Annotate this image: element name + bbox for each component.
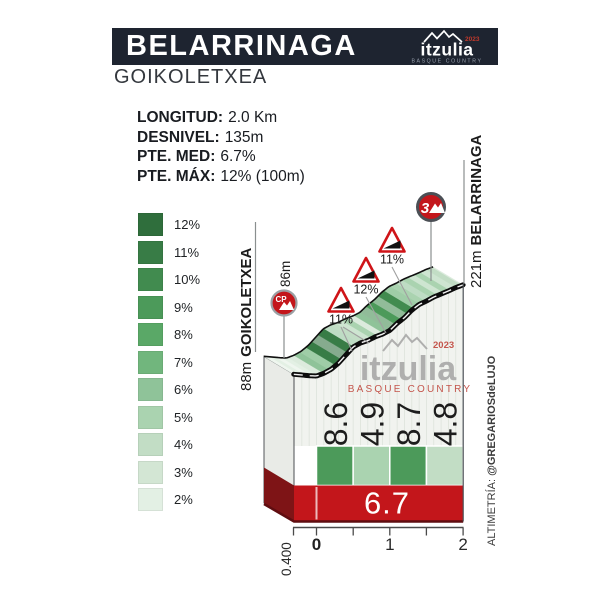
- credit-prefix: ALTIMETRÍA:: [485, 476, 498, 546]
- segment-blocks: [295, 446, 464, 486]
- watermark-tagline: BASQUE COUNTRY: [348, 384, 473, 395]
- gradient-triangle: 11%: [380, 228, 405, 267]
- credit-text: ALTIMETRÍA: @GREGARIOSdeLUJO: [485, 355, 498, 546]
- segment-block: [317, 446, 354, 486]
- summit-name: BELARRINAGA: [468, 134, 485, 245]
- summit-label: 221mBELARRINAGA: [468, 134, 485, 288]
- category-badge: 3: [418, 194, 446, 221]
- start-elevation: 88m: [238, 362, 255, 391]
- axis-offset-label: 0.400: [279, 542, 294, 576]
- segment-gradient-value: 8.7: [391, 402, 427, 446]
- approach-block: [295, 446, 317, 486]
- gradient-triangle: 11%: [329, 288, 354, 327]
- checkpoint-elevation: 86m: [278, 261, 293, 287]
- start-label: 88mGOIKOLETXEA: [238, 247, 255, 391]
- average-gradient-value: 6.7: [364, 486, 410, 521]
- segment-block: [353, 446, 390, 486]
- axis-tick-label: 0: [312, 535, 321, 554]
- max-gradient-label: 12%: [353, 283, 378, 297]
- checkpoint-badge: CP: [272, 291, 297, 316]
- checkpoint-badge-text: CP: [275, 295, 287, 304]
- segment-block: [426, 446, 463, 486]
- x-axis: 0 1 2 0.400: [279, 528, 468, 577]
- climb-profile-chart: 6.7 2023 itzulia BASQUE COUNTRY 8.6 4.9 …: [0, 0, 600, 600]
- segment-gradient-value: 4.9: [355, 402, 391, 446]
- segment-gradient-value: 4.8: [428, 402, 464, 446]
- segment-gradients: 8.6 4.9 8.7 4.8: [318, 402, 464, 446]
- max-gradient-label: 11%: [329, 313, 353, 327]
- start-name: GOIKOLETXEA: [238, 247, 255, 356]
- watermark-name: itzulia: [360, 350, 457, 388]
- axis-tick-label: 1: [385, 535, 394, 554]
- category-number: 3: [421, 200, 430, 217]
- segment-block: [390, 446, 427, 486]
- segment-gradient-value: 8.6: [318, 402, 354, 446]
- axis-tick-label: 2: [458, 535, 467, 554]
- credit-handle: @GREGARIOSdeLUJO: [486, 355, 498, 476]
- summit-elevation: 221m: [468, 250, 485, 288]
- gradient-triangle: 12%: [353, 258, 378, 297]
- max-gradient-label: 11%: [380, 253, 404, 267]
